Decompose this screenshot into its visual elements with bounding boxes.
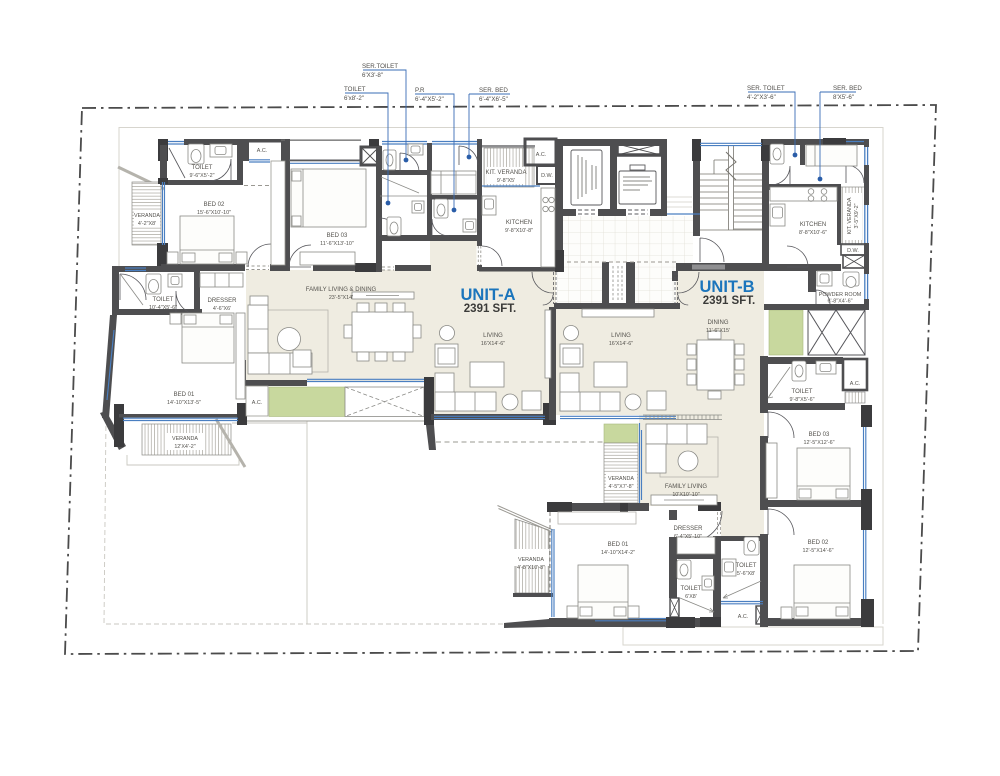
- svg-text:9'-6"X5'-2": 9'-6"X5'-2": [189, 173, 214, 179]
- svg-text:A.C.: A.C.: [536, 152, 546, 158]
- svg-text:TOILET: TOILET: [681, 586, 702, 592]
- svg-text:3'-5"X9'-2": 3'-5"X9'-2": [854, 203, 860, 228]
- svg-text:SER.TOILET: SER.TOILET: [362, 63, 398, 70]
- svg-text:P.R: P.R: [415, 87, 425, 94]
- svg-text:LIVING: LIVING: [611, 333, 631, 339]
- svg-text:UNIT-A: UNIT-A: [461, 286, 516, 304]
- svg-text:SER. BED: SER. BED: [479, 87, 508, 94]
- svg-text:A.C.: A.C.: [252, 400, 262, 406]
- svg-text:8'-8"X10'-6": 8'-8"X10'-6": [799, 230, 827, 236]
- svg-text:D.W.: D.W.: [541, 173, 553, 179]
- svg-text:SER. BED: SER. BED: [833, 85, 862, 92]
- svg-text:TOILET: TOILET: [153, 297, 174, 303]
- svg-text:9'-8"X5': 9'-8"X5': [497, 178, 515, 184]
- svg-text:4'-6"X6': 4'-6"X6': [213, 306, 231, 312]
- svg-text:8'X5'-6": 8'X5'-6": [833, 94, 854, 101]
- svg-text:TOILET: TOILET: [344, 86, 366, 93]
- svg-text:VERANDA: VERANDA: [134, 213, 160, 219]
- svg-text:POWDER ROOM: POWDER ROOM: [819, 292, 862, 298]
- svg-text:14'-10"X14'-2": 14'-10"X14'-2": [601, 550, 635, 556]
- svg-text:9'-8"X10'-8": 9'-8"X10'-8": [505, 228, 533, 234]
- svg-text:14'-10"X13'-5": 14'-10"X13'-5": [167, 400, 201, 406]
- svg-text:FAMILY LIVING: FAMILY LIVING: [665, 484, 707, 490]
- svg-text:16'X14'-6": 16'X14'-6": [481, 341, 505, 347]
- svg-text:A.C.: A.C.: [850, 381, 860, 387]
- svg-text:10'X10'-10": 10'X10'-10": [672, 492, 699, 498]
- svg-text:12'X4'-2": 12'X4'-2": [174, 444, 195, 450]
- svg-text:BED 01: BED 01: [174, 392, 195, 398]
- svg-text:FAMILY LIVING & DINING: FAMILY LIVING & DINING: [306, 287, 377, 293]
- svg-text:9'-8"X5'-6": 9'-8"X5'-6": [789, 397, 814, 403]
- svg-text:KITCHEN: KITCHEN: [800, 222, 826, 228]
- svg-text:BED 03: BED 03: [327, 233, 348, 239]
- svg-text:16'X14'-6": 16'X14'-6": [609, 341, 633, 347]
- svg-text:11'-6"X13'-10": 11'-6"X13'-10": [320, 241, 354, 247]
- svg-text:15'-6"X10'-10": 15'-6"X10'-10": [197, 210, 231, 216]
- svg-text:BED 03: BED 03: [809, 432, 830, 438]
- svg-text:10'-4"X5'-6": 10'-4"X5'-6": [149, 305, 177, 311]
- svg-text:4'-5"X7'-8": 4'-5"X7'-8": [608, 484, 633, 490]
- svg-text:2391 SFT.: 2391 SFT.: [464, 303, 516, 315]
- svg-text:23'-5"X14': 23'-5"X14': [329, 295, 353, 301]
- svg-text:6'x8'-2": 6'x8'-2": [344, 95, 364, 102]
- svg-text:6'-4"X5'-2": 6'-4"X5'-2": [415, 96, 444, 103]
- svg-text:6'X8': 6'X8': [685, 594, 697, 600]
- svg-text:VERANDA: VERANDA: [518, 557, 544, 563]
- svg-text:KIT. VERANDA: KIT. VERANDA: [485, 170, 526, 176]
- svg-text:12'-5"X12'-6": 12'-5"X12'-6": [803, 440, 834, 446]
- svg-text:TOILET: TOILET: [792, 389, 813, 395]
- svg-text:11'-6"X15': 11'-6"X15': [706, 328, 730, 334]
- svg-text:VERANDA: VERANDA: [608, 476, 634, 482]
- svg-text:DRESSER: DRESSER: [673, 526, 703, 532]
- svg-text:6'-4"X5'-10": 6'-4"X5'-10": [674, 534, 702, 540]
- svg-text:TOILET: TOILET: [736, 563, 757, 569]
- svg-text:6'X3'-8": 6'X3'-8": [362, 72, 383, 79]
- svg-text:BED 02: BED 02: [808, 540, 829, 546]
- svg-text:12'-5"X14'-6": 12'-5"X14'-6": [802, 548, 833, 554]
- svg-text:SER. TOILET: SER. TOILET: [747, 85, 785, 92]
- svg-text:BED 02: BED 02: [204, 202, 225, 208]
- svg-text:6'-4"X6'-5": 6'-4"X6'-5": [479, 96, 508, 103]
- svg-text:2391 SFT.: 2391 SFT.: [703, 295, 755, 307]
- svg-text:TOILET: TOILET: [192, 165, 213, 171]
- svg-text:VERANDA: VERANDA: [172, 436, 198, 442]
- svg-text:A.C.: A.C.: [738, 614, 748, 620]
- svg-text:KIT. VERANDA: KIT. VERANDA: [847, 197, 853, 234]
- svg-text:BED 01: BED 01: [608, 542, 629, 548]
- svg-text:4'-2"X3'-6": 4'-2"X3'-6": [747, 94, 776, 101]
- svg-text:DINING: DINING: [708, 320, 729, 326]
- svg-text:6'-8"X4'-6": 6'-8"X4'-6": [827, 299, 852, 305]
- svg-text:4'-8"X10'-8": 4'-8"X10'-8": [517, 565, 545, 571]
- svg-text:A.C.: A.C.: [257, 148, 267, 154]
- svg-text:5'-6"X8': 5'-6"X8': [737, 571, 755, 577]
- svg-text:UNIT-B: UNIT-B: [700, 278, 755, 296]
- svg-text:DRESSER: DRESSER: [207, 298, 237, 304]
- svg-text:4'-2"X8': 4'-2"X8': [138, 221, 156, 227]
- svg-text:LIVING: LIVING: [483, 333, 503, 339]
- svg-text:KITCHEN: KITCHEN: [506, 220, 532, 226]
- svg-text:D.W.: D.W.: [847, 248, 859, 254]
